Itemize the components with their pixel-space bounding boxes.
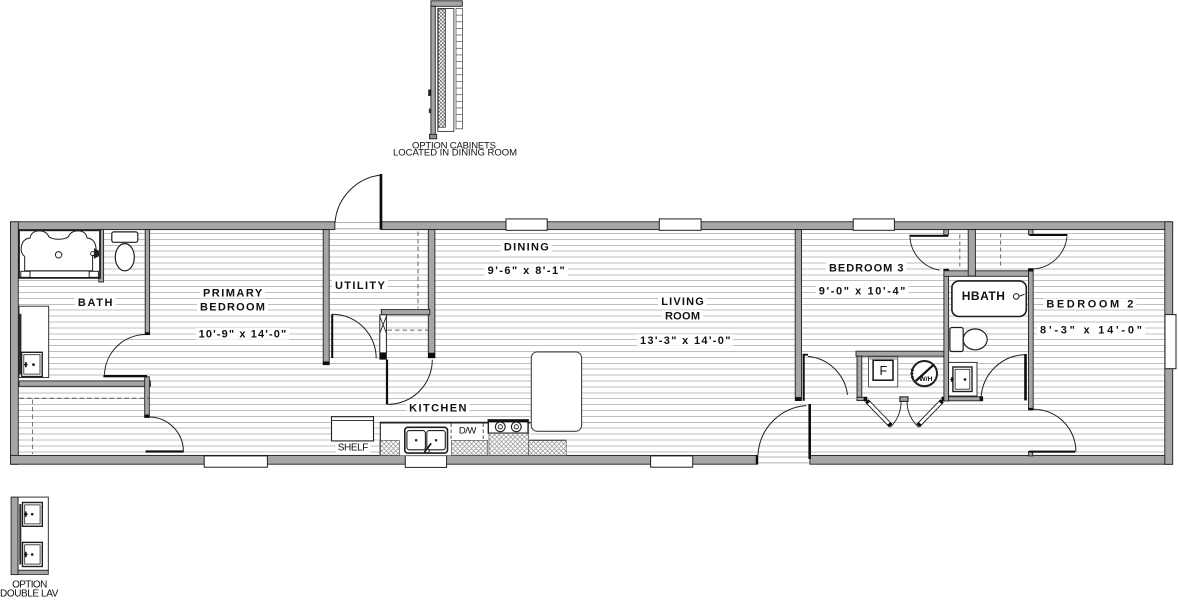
svg-text:9'-0" x 10'-4": 9'-0" x 10'-4": [819, 285, 906, 297]
svg-text:10'-9" x 14'-0": 10'-9" x 14'-0": [199, 329, 287, 341]
svg-text:HBATH: HBATH: [962, 289, 1005, 303]
svg-text:LIVING: LIVING: [661, 296, 704, 308]
svg-text:F: F: [879, 364, 887, 378]
svg-text:BEDROOM: BEDROOM: [200, 301, 265, 313]
svg-text:UTILITY: UTILITY: [335, 280, 386, 292]
svg-text:D/W: D/W: [459, 426, 477, 437]
svg-text:BEDROOM 3: BEDROOM 3: [829, 263, 904, 275]
svg-text:LOCATED IN DINING ROOM: LOCATED IN DINING ROOM: [393, 148, 517, 159]
svg-text:DINING: DINING: [504, 242, 549, 254]
svg-text:BATH: BATH: [78, 297, 113, 309]
svg-text:W/H: W/H: [919, 376, 932, 383]
svg-text:9'-6" x 8'-1": 9'-6" x 8'-1": [488, 265, 565, 277]
svg-text:13'-3" x 14'-0": 13'-3" x 14'-0": [640, 335, 731, 347]
svg-text:KITCHEN: KITCHEN: [409, 403, 466, 415]
svg-text:ROOM: ROOM: [665, 311, 700, 323]
svg-text:DOUBLE LAV: DOUBLE LAV: [0, 589, 59, 600]
svg-text:SHELF: SHELF: [338, 443, 369, 454]
